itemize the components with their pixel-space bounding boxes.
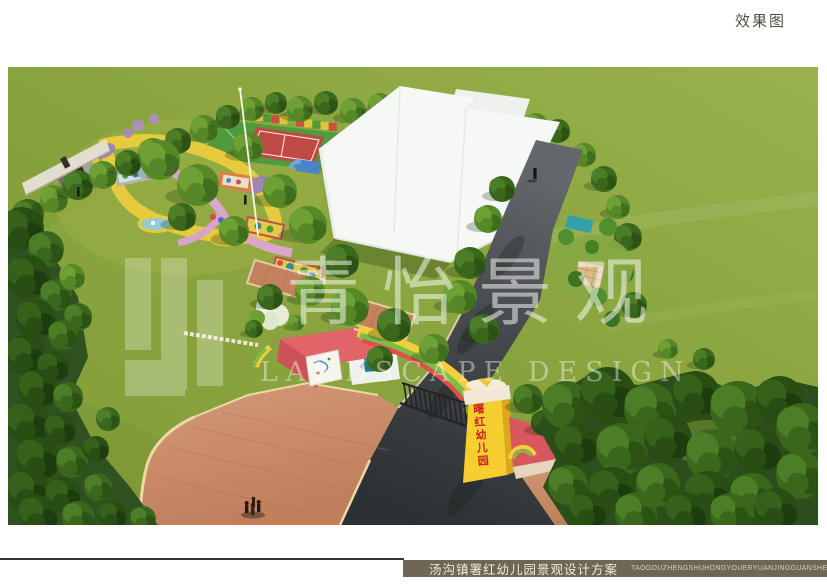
rendering-image: 青怡景观 LANDSCAPE DESIGN 曙红幼儿园 — [8, 67, 818, 525]
page-title: 效果图 — [735, 10, 786, 31]
project-title-pinyin: TAOGOUZHENGSHUHONGYOUERYUANJINGGUANSHEJI… — [631, 565, 827, 572]
scene-svg — [8, 67, 818, 525]
person-playground-1 — [77, 187, 80, 197]
person-playground-2 — [244, 195, 247, 205]
gate-pillar — [463, 377, 515, 483]
project-title-chinese: 汤沟镇署红幼儿园景观设计方案 — [429, 559, 618, 578]
forest-right — [538, 367, 818, 525]
footer-title-bar: 汤沟镇署红幼儿园景观设计方案 TAOGOUZHENGSHUHONGYOUERYU… — [403, 560, 827, 577]
footer-rule — [0, 558, 404, 560]
gate-sign — [306, 350, 342, 386]
design-board: 效果图 — [0, 0, 827, 585]
